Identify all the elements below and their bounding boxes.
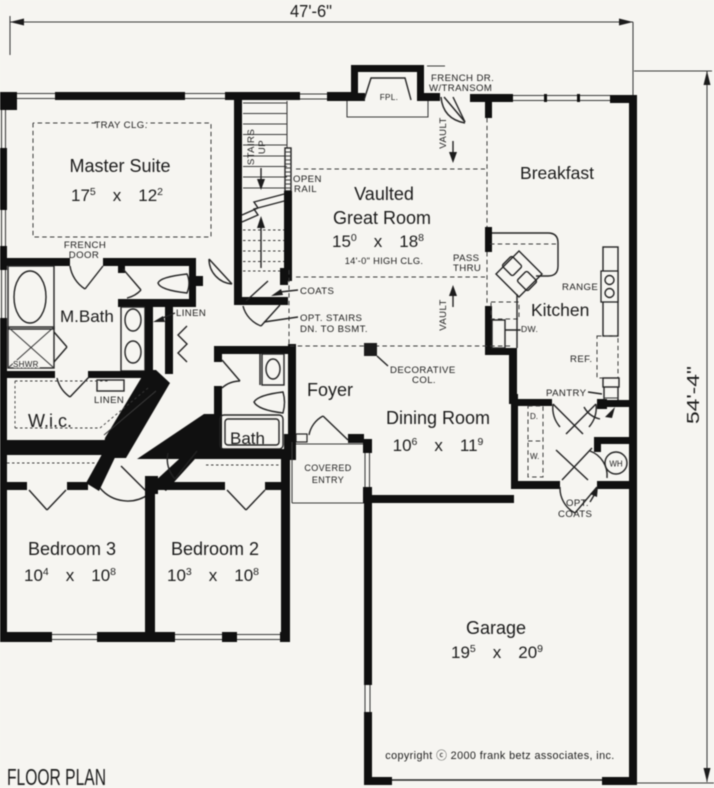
svg-text:54'-4": 54'-4": [683, 366, 703, 424]
svg-text:DN. TO BSMT.: DN. TO BSMT.: [300, 324, 368, 335]
svg-text:VAULT: VAULT: [438, 117, 449, 149]
svg-text:WH: WH: [609, 460, 623, 469]
svg-text:Master Suite: Master Suite: [69, 156, 170, 176]
svg-text:RAIL: RAIL: [294, 184, 317, 195]
svg-text:VAULT: VAULT: [438, 299, 449, 331]
svg-text:UP: UP: [257, 140, 268, 154]
svg-text:Kitchen: Kitchen: [531, 300, 589, 320]
svg-text:47'-6": 47'-6": [290, 1, 332, 21]
svg-text:106 x 119: 106 x 119: [393, 436, 484, 455]
svg-text:COVERED: COVERED: [304, 463, 351, 473]
svg-text:STAIRS: STAIRS: [246, 129, 257, 165]
svg-text:DW.: DW.: [521, 324, 538, 334]
svg-text:copyright ⓒ 2000 frank betz: copyright ⓒ 2000 frank betz associates, …: [385, 749, 614, 762]
svg-text:OPT.: OPT.: [566, 498, 589, 509]
svg-text:103 x 108: 103 x 108: [167, 566, 259, 585]
svg-text:Dining Room: Dining Room: [386, 408, 490, 428]
svg-text:W/TRANSOM: W/TRANSOM: [429, 83, 492, 94]
svg-text:RANGE: RANGE: [562, 282, 598, 293]
svg-text:REF.: REF.: [570, 354, 592, 365]
svg-text:14'-0" HIGH CLG.: 14'-0" HIGH CLG.: [345, 256, 424, 266]
svg-text:Bath: Bath: [230, 429, 265, 448]
svg-text:Garage: Garage: [466, 618, 526, 638]
svg-text:175 x 122: 175 x 122: [71, 186, 163, 205]
svg-text:195 x 209: 195 x 209: [451, 643, 543, 662]
svg-text:W.: W.: [530, 452, 539, 461]
svg-text:M.Bath: M.Bath: [60, 307, 114, 326]
svg-text:PANTRY: PANTRY: [546, 388, 587, 399]
svg-text:LINEN: LINEN: [94, 395, 124, 406]
svg-text:LINEN: LINEN: [176, 308, 206, 319]
svg-text:FLOOR PLAN: FLOOR PLAN: [7, 764, 106, 788]
svg-text:TRAY CLG.: TRAY CLG.: [94, 120, 147, 131]
svg-text:DOOR: DOOR: [69, 250, 99, 261]
svg-text:104 x 108: 104 x 108: [24, 566, 116, 585]
svg-text:ENTRY: ENTRY: [312, 475, 344, 485]
svg-text:SHWR: SHWR: [13, 360, 39, 369]
svg-text:Great Room: Great Room: [333, 208, 431, 228]
svg-text:OPT. STAIRS: OPT. STAIRS: [300, 313, 362, 324]
svg-text:THRU: THRU: [453, 263, 481, 274]
svg-text:COATS: COATS: [300, 286, 334, 297]
svg-text:D.: D.: [530, 412, 538, 421]
svg-text:Bedroom 3: Bedroom 3: [28, 539, 116, 559]
svg-text:COL.: COL.: [412, 375, 436, 386]
svg-text:FPL.: FPL.: [380, 93, 399, 102]
svg-text:Vaulted: Vaulted: [354, 184, 414, 204]
svg-text:Bedroom 2: Bedroom 2: [171, 539, 259, 559]
svg-text:Foyer: Foyer: [307, 380, 353, 400]
svg-text:Breakfast: Breakfast: [520, 163, 594, 183]
svg-text:COATS: COATS: [558, 509, 592, 520]
svg-text:150 x 188: 150 x 188: [332, 232, 424, 251]
svg-text:W.i.c.: W.i.c.: [28, 411, 72, 431]
